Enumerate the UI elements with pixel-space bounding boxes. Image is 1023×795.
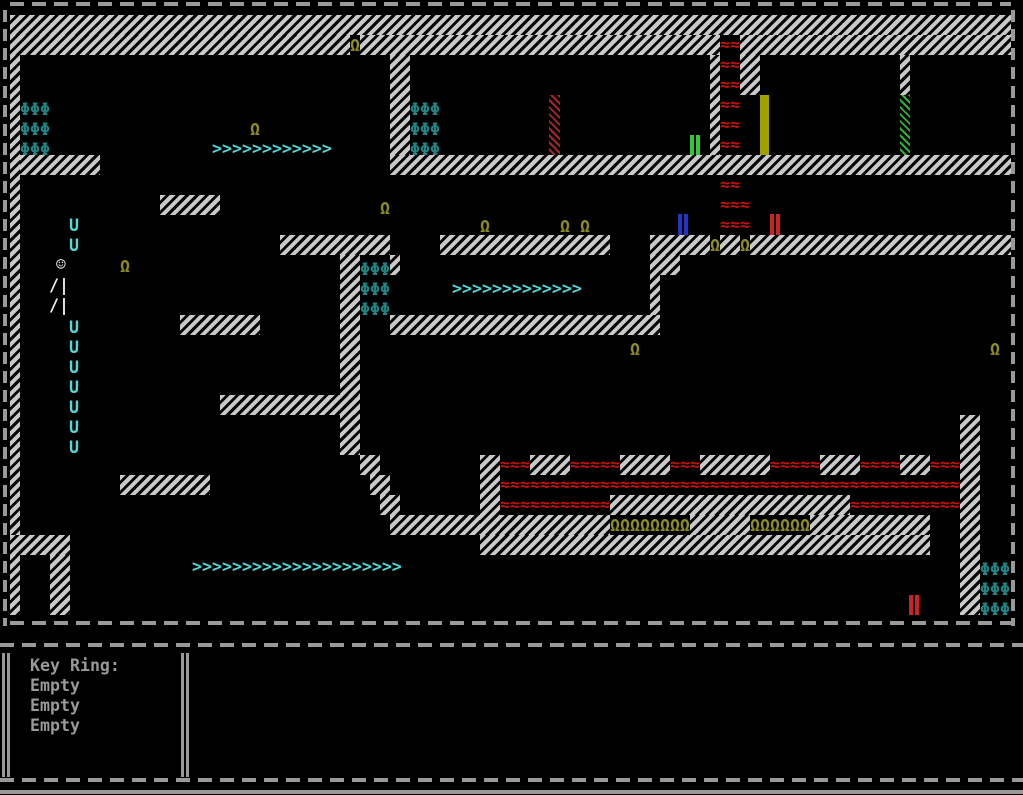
omega-creature: Ω [740, 236, 750, 256]
wall-block [390, 515, 610, 535]
wall-block [610, 495, 850, 515]
player-character-body: /| [49, 276, 69, 296]
wall-block [720, 235, 740, 255]
lava-hazard: ≈≈≈ [670, 455, 700, 475]
key-ring-slot-2: Empty [30, 696, 80, 716]
omega-creature: Ω [350, 36, 360, 56]
wall-block [280, 235, 390, 255]
wall-block [710, 55, 720, 155]
panel-border-bottom [0, 778, 1023, 782]
wall-block [660, 255, 680, 275]
wall-block [690, 515, 750, 535]
wall-block [10, 35, 350, 55]
key-ring-title: Key Ring: [30, 656, 120, 676]
conveyor-down-arrow: U [69, 398, 79, 418]
lava-hazard: ≈≈≈ [930, 455, 960, 475]
lava-hazard: ≈≈≈≈ [860, 455, 900, 475]
wall-block [810, 515, 930, 535]
panel-border-top [0, 643, 1023, 647]
conveyor-right-arrows: >>>>>>>>>>>>>>>>>>>>> [192, 557, 402, 577]
wall-block [620, 455, 670, 475]
wall-block [390, 155, 1011, 175]
door-solid-yellow [760, 95, 769, 155]
conveyor-down-arrow: U [69, 318, 79, 338]
wall-block [390, 315, 660, 335]
lava-hazard: ≈≈≈≈≈≈≈≈≈≈≈≈≈≈≈≈≈≈≈≈≈≈≈≈≈≈≈≈≈≈≈≈≈≈≈≈≈≈≈≈… [500, 475, 960, 495]
screen-bottom-edge [0, 790, 1023, 794]
game-border-right [1011, 10, 1015, 626]
omega-creature: Ω [990, 340, 1000, 360]
wall-block [390, 255, 400, 275]
player-character-head: ☺ [56, 255, 66, 275]
wall-block [480, 535, 930, 555]
phi-item-group: ΦΦΦ ΦΦΦ ΦΦΦ [20, 100, 50, 160]
wall-block [370, 475, 390, 495]
wall-block [10, 15, 1011, 35]
game-border-top [10, 2, 1011, 6]
omega-creature: Ω [380, 199, 390, 219]
lava-hazard: ≈≈≈≈≈≈≈≈≈≈≈ [500, 495, 610, 515]
wall-block [440, 235, 610, 255]
conveyor-down-arrow: U [69, 236, 79, 256]
game-border-bottom [10, 621, 1011, 625]
lava-hazard: ≈≈≈ [500, 455, 530, 475]
wall-block [10, 555, 20, 615]
lava-hazard: ≈≈≈≈≈≈≈≈≈≈≈ [850, 495, 960, 515]
game-screen: ≈≈≈≈ ≈≈ ≈≈ ≈≈ ≈≈≈≈≈≈≈ ≈≈≈≈≈≈≈≈≈≈≈≈≈≈≈≈≈≈… [0, 0, 1023, 795]
conveyor-down-arrow: U [69, 418, 79, 438]
key-ring-slot-1: Empty [30, 676, 80, 696]
wall-block [180, 315, 260, 335]
omega-creature: Ω [710, 236, 720, 256]
wall-block [220, 395, 360, 415]
door-hatch-red [549, 95, 560, 155]
omega-creature-row: ΩΩΩΩΩΩΩΩ [610, 516, 690, 536]
conveyor-right-arrows: >>>>>>>>>>>> [212, 139, 332, 159]
wall-block [900, 55, 910, 95]
omega-creature: Ω [120, 257, 130, 277]
lava-hazard: ≈≈≈≈≈ [570, 455, 620, 475]
phi-item-group: ΦΦΦ ΦΦΦ ΦΦΦ [360, 260, 390, 320]
wall-block [820, 455, 860, 475]
conveyor-down-arrow: U [69, 216, 79, 236]
conveyor-down-arrow: U [69, 338, 79, 358]
conveyor-right-arrows: >>>>>>>>>>>>> [452, 279, 582, 299]
lava-hazard: ≈≈ [720, 175, 740, 195]
panel-divider [181, 653, 189, 777]
lava-hazard: ≈≈ [720, 35, 740, 55]
conveyor-down-arrow: U [69, 438, 79, 458]
door-hatch-green [900, 95, 910, 155]
game-border-left [3, 10, 7, 626]
player-character-body: /| [49, 296, 69, 316]
wall-block [750, 235, 1011, 255]
wall-block [900, 455, 930, 475]
phi-item-group: ΦΦΦ ΦΦΦ ΦΦΦ [980, 560, 1010, 620]
panel-border-left [2, 653, 10, 777]
omega-creature: Ω [580, 217, 590, 237]
omega-creature: Ω [480, 217, 490, 237]
door-bars-green [690, 135, 700, 155]
conveyor-down-arrow: U [69, 358, 79, 378]
omega-creature-row: ΩΩΩΩΩΩ [750, 516, 810, 536]
wall-block [340, 255, 360, 455]
conveyor-down-arrow: U [69, 378, 79, 398]
phi-item-group: ΦΦΦ ΦΦΦ ΦΦΦ [410, 100, 440, 160]
wall-block [700, 455, 770, 475]
wall-block [380, 495, 400, 515]
omega-creature: Ω [560, 217, 570, 237]
wall-block [360, 35, 720, 55]
wall-block [530, 455, 570, 475]
door-bars-red [909, 595, 920, 615]
wall-block [360, 455, 380, 475]
door-bars-blue [678, 214, 690, 235]
lava-hazard: ≈≈ ≈≈ ≈≈ ≈≈ ≈≈ [720, 55, 740, 155]
wall-block [50, 555, 70, 615]
wall-block [740, 55, 760, 95]
lava-hazard: ≈≈≈ ≈≈≈ [720, 195, 750, 235]
lava-hazard: ≈≈≈≈≈ [770, 455, 820, 475]
door-bars-red [770, 214, 781, 235]
wall-block [650, 235, 710, 255]
wall-block [10, 55, 20, 535]
wall-block [650, 255, 660, 315]
omega-creature: Ω [630, 340, 640, 360]
wall-block [160, 195, 220, 215]
wall-block [740, 35, 1011, 55]
omega-creature: Ω [250, 120, 260, 140]
key-ring-slot-3: Empty [30, 716, 80, 736]
wall-block [120, 475, 210, 495]
wall-block [960, 415, 980, 615]
wall-block [10, 535, 70, 555]
